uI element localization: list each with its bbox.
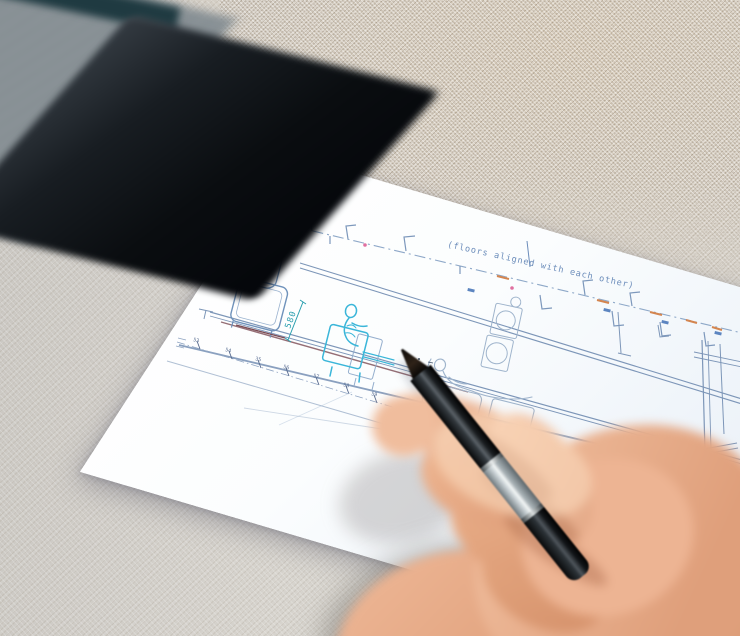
- hand-holding-pen: [0, 0, 740, 636]
- index-fingertip: [372, 396, 436, 456]
- photo-scene: (floors aligned with each other): [0, 0, 740, 636]
